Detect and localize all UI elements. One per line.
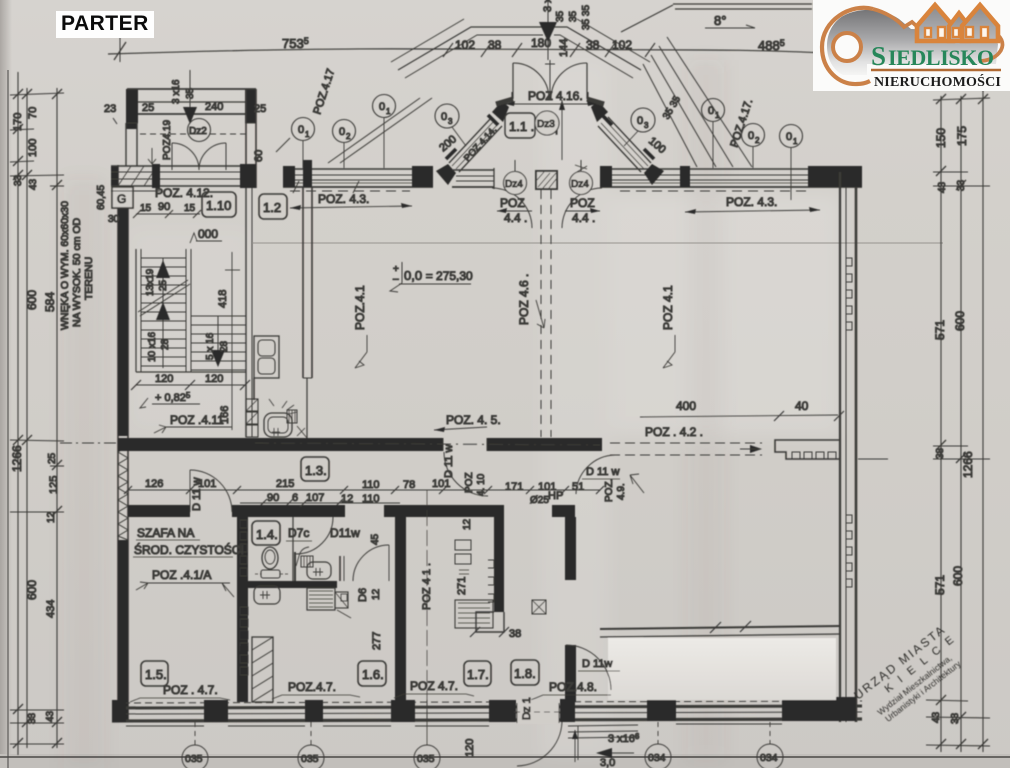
svg-text:144: 144 (558, 39, 570, 57)
svg-text:POZ .4.1/A: POZ .4.1/A (152, 568, 211, 582)
svg-text:0: 0 (708, 105, 714, 117)
svg-text:90: 90 (158, 201, 170, 213)
svg-text:0: 0 (298, 124, 304, 136)
svg-text:35 35: 35 35 (581, 5, 592, 30)
svg-text:8°: 8° (714, 13, 726, 28)
svg-text:28: 28 (160, 338, 171, 350)
svg-text:POZ 4.16.: POZ 4.16. (528, 89, 583, 103)
svg-text:1.4.: 1.4. (256, 527, 278, 542)
svg-text:51: 51 (572, 481, 584, 493)
svg-text:POZ 4.1: POZ 4.1 (661, 285, 675, 330)
svg-text:1.1 .: 1.1 . (509, 119, 534, 134)
svg-text:IEDLISKO: IEDLISKO (888, 45, 994, 70)
svg-text:0: 0 (786, 131, 792, 143)
svg-text:035: 035 (185, 753, 203, 765)
svg-text:POZ. 4. 5.: POZ. 4. 5. (446, 413, 501, 427)
svg-text:1.6.: 1.6. (362, 667, 384, 682)
svg-text:100: 100 (27, 139, 39, 157)
svg-text:POZ .4.11: POZ .4.11 (170, 413, 224, 427)
svg-text:60,45: 60,45 (96, 185, 107, 210)
svg-text:Ø25: Ø25 (530, 495, 549, 506)
svg-text:12: 12 (462, 518, 473, 530)
svg-text:3: 3 (644, 121, 649, 130)
svg-text:POZ.4.7.: POZ.4.7. (288, 680, 336, 694)
svg-text:23: 23 (104, 103, 116, 115)
svg-text:418: 418 (217, 290, 229, 308)
svg-text:43: 43 (931, 711, 942, 723)
svg-text:4.4 .: 4.4 . (572, 211, 595, 225)
svg-text:POZ . 4.7.: POZ . 4.7. (163, 683, 218, 697)
svg-text:Dz 1: Dz 1 (521, 697, 533, 720)
svg-text:25: 25 (47, 452, 58, 464)
svg-text:35: 35 (568, 10, 579, 22)
svg-text:1: 1 (386, 107, 391, 116)
svg-text:120: 120 (155, 373, 173, 385)
svg-text:45: 45 (370, 533, 381, 545)
svg-text:60: 60 (253, 150, 265, 162)
svg-text:S: S (871, 41, 886, 71)
svg-text:571: 571 (933, 575, 947, 595)
svg-text:Dz4: Dz4 (505, 179, 523, 190)
svg-text:30: 30 (108, 214, 120, 225)
svg-text:4.9.: 4.9. (616, 483, 627, 500)
svg-text:0: 0 (637, 115, 643, 127)
svg-text:0: 0 (379, 101, 385, 113)
svg-text:1: 1 (793, 137, 798, 146)
svg-text:POZ4.19: POZ4.19 (162, 120, 173, 160)
svg-text:126: 126 (145, 478, 163, 490)
svg-text:38: 38 (935, 447, 946, 459)
svg-text:POZ.: POZ. (604, 479, 615, 502)
svg-text:2: 2 (346, 132, 351, 141)
svg-text:15: 15 (140, 203, 152, 214)
svg-text:434: 434 (45, 600, 57, 618)
svg-text:277: 277 (371, 632, 383, 650)
svg-text:NIERUCHOMOŚCI: NIERUCHOMOŚCI (874, 73, 1001, 90)
svg-text:6: 6 (292, 492, 298, 504)
svg-text:POZ.4.8.: POZ.4.8. (549, 680, 597, 694)
svg-text:000: 000 (198, 227, 218, 241)
svg-text:Dz3: Dz3 (537, 119, 555, 130)
svg-text:1.8.: 1.8. (514, 666, 536, 681)
svg-text:POZ 4.7.: POZ 4.7. (410, 679, 458, 693)
svg-text:POZ: POZ (500, 196, 525, 210)
svg-text:1.2: 1.2 (263, 200, 281, 215)
svg-text:ŚROD. CZYSTOŚCI: ŚROD. CZYSTOŚCI (134, 542, 244, 557)
svg-text:Dz4: Dz4 (571, 179, 589, 190)
svg-text:0,0 = 275,30: 0,0 = 275,30 (404, 268, 473, 283)
svg-text:120: 120 (205, 373, 223, 385)
svg-text:WNĘKA O WYM. 60x60x30: WNĘKA O WYM. 60x60x30 (59, 201, 71, 330)
svg-text:166: 166 (219, 406, 231, 424)
svg-text:110: 110 (362, 493, 380, 505)
svg-text:1266: 1266 (10, 445, 24, 472)
svg-text:240: 240 (205, 101, 223, 113)
svg-text:D 11 w: D 11 w (586, 466, 619, 478)
svg-text:3: 3 (448, 117, 453, 126)
svg-text:600: 600 (951, 566, 965, 586)
svg-text:10 x16: 10 x16 (147, 332, 158, 362)
svg-text:102: 102 (455, 38, 475, 52)
svg-text:D 11 w: D 11 w (191, 478, 203, 511)
svg-text:0: 0 (748, 130, 754, 142)
svg-text:170: 170 (12, 113, 24, 131)
svg-text:600: 600 (25, 290, 39, 310)
svg-text:034: 034 (648, 752, 666, 764)
svg-text:1.5.: 1.5. (145, 667, 167, 682)
svg-text:215: 215 (276, 478, 294, 490)
svg-text:G: G (117, 192, 126, 206)
svg-text:0: 0 (339, 126, 345, 138)
svg-text:POZ. 4.3.: POZ. 4.3. (726, 195, 777, 209)
svg-text:43: 43 (45, 710, 56, 722)
svg-text:15: 15 (184, 203, 196, 214)
svg-text:+ 0,825: + 0,825 (155, 391, 191, 404)
svg-text:33: 33 (956, 179, 967, 191)
svg-text:101: 101 (432, 478, 450, 490)
svg-text:Dz2: Dz2 (189, 126, 207, 137)
svg-text:0: 0 (441, 111, 447, 123)
svg-text:1: 1 (715, 111, 720, 120)
svg-text:107: 107 (306, 492, 324, 504)
svg-text:33: 33 (27, 712, 38, 724)
svg-text:25: 25 (158, 279, 169, 291)
svg-text:38: 38 (509, 628, 521, 640)
svg-text:D11w: D11w (330, 526, 360, 540)
svg-text:12: 12 (371, 588, 382, 600)
svg-text:D7c: D7c (288, 526, 309, 540)
svg-text:1.7.: 1.7. (467, 667, 489, 682)
svg-text:POZ.4.1: POZ.4.1 (353, 285, 367, 330)
svg-text:2: 2 (755, 136, 760, 145)
svg-text:1266: 1266 (961, 451, 975, 478)
svg-text:3 x: 3 x (542, 0, 554, 12)
svg-text:171: 171 (505, 481, 523, 493)
svg-text:25: 25 (142, 102, 154, 114)
svg-text:035: 035 (417, 753, 435, 765)
svg-text:175: 175 (955, 126, 969, 146)
svg-text:110: 110 (362, 479, 380, 491)
svg-text:1: 1 (305, 130, 310, 139)
svg-text:125: 125 (48, 476, 60, 494)
svg-text:SZAFA NA: SZAFA NA (137, 526, 194, 540)
svg-text:035: 035 (301, 753, 319, 765)
svg-text:584: 584 (43, 292, 57, 312)
svg-text:12: 12 (46, 511, 57, 523)
svg-text:78: 78 (403, 479, 415, 491)
svg-text:3,0: 3,0 (600, 757, 615, 768)
svg-text:600: 600 (25, 580, 39, 600)
svg-text:HP: HP (548, 490, 563, 502)
svg-text:600: 600 (953, 311, 967, 331)
svg-text:271: 271 (456, 577, 468, 595)
svg-text:POZ. 4.3.: POZ. 4.3. (318, 192, 369, 206)
svg-text:120: 120 (464, 739, 476, 757)
svg-text:33: 33 (950, 712, 961, 724)
svg-text:35: 35 (555, 10, 566, 22)
svg-text:33: 33 (13, 174, 24, 186)
svg-text:90: 90 (267, 492, 279, 504)
svg-text:150: 150 (934, 128, 948, 148)
svg-text:40: 40 (795, 399, 809, 413)
svg-text:NA WYSOK. 50 cm OD: NA WYSOK. 50 cm OD (71, 217, 83, 327)
svg-text:TERENU: TERENU (83, 257, 95, 300)
svg-text:–: – (393, 274, 399, 285)
svg-text:4.4 .: 4.4 . (504, 211, 527, 225)
svg-text:43: 43 (937, 181, 948, 193)
svg-text:POZ 4.6 .: POZ 4.6 . (517, 274, 531, 325)
svg-text:D 11w: D 11w (582, 658, 612, 670)
svg-text:3 x16: 3 x16 (171, 79, 182, 104)
svg-text:D 11 w: D 11 w (443, 445, 455, 478)
svg-text:1.10: 1.10 (206, 198, 231, 213)
svg-text:POZ . 4.2 .: POZ . 4.2 . (645, 425, 703, 439)
svg-text:43: 43 (28, 178, 39, 190)
svg-text:28: 28 (219, 340, 230, 352)
svg-text:5 x 16: 5 x 16 (205, 332, 216, 360)
svg-text:400: 400 (676, 399, 696, 413)
svg-text:13x19: 13x19 (145, 268, 156, 296)
svg-text:571: 571 (933, 320, 947, 340)
svg-text:D6: D6 (357, 588, 369, 602)
svg-text:POZ: POZ (570, 196, 595, 210)
svg-text:034: 034 (760, 752, 778, 764)
svg-text:1.3.: 1.3. (305, 463, 327, 478)
svg-text:70: 70 (27, 107, 39, 119)
